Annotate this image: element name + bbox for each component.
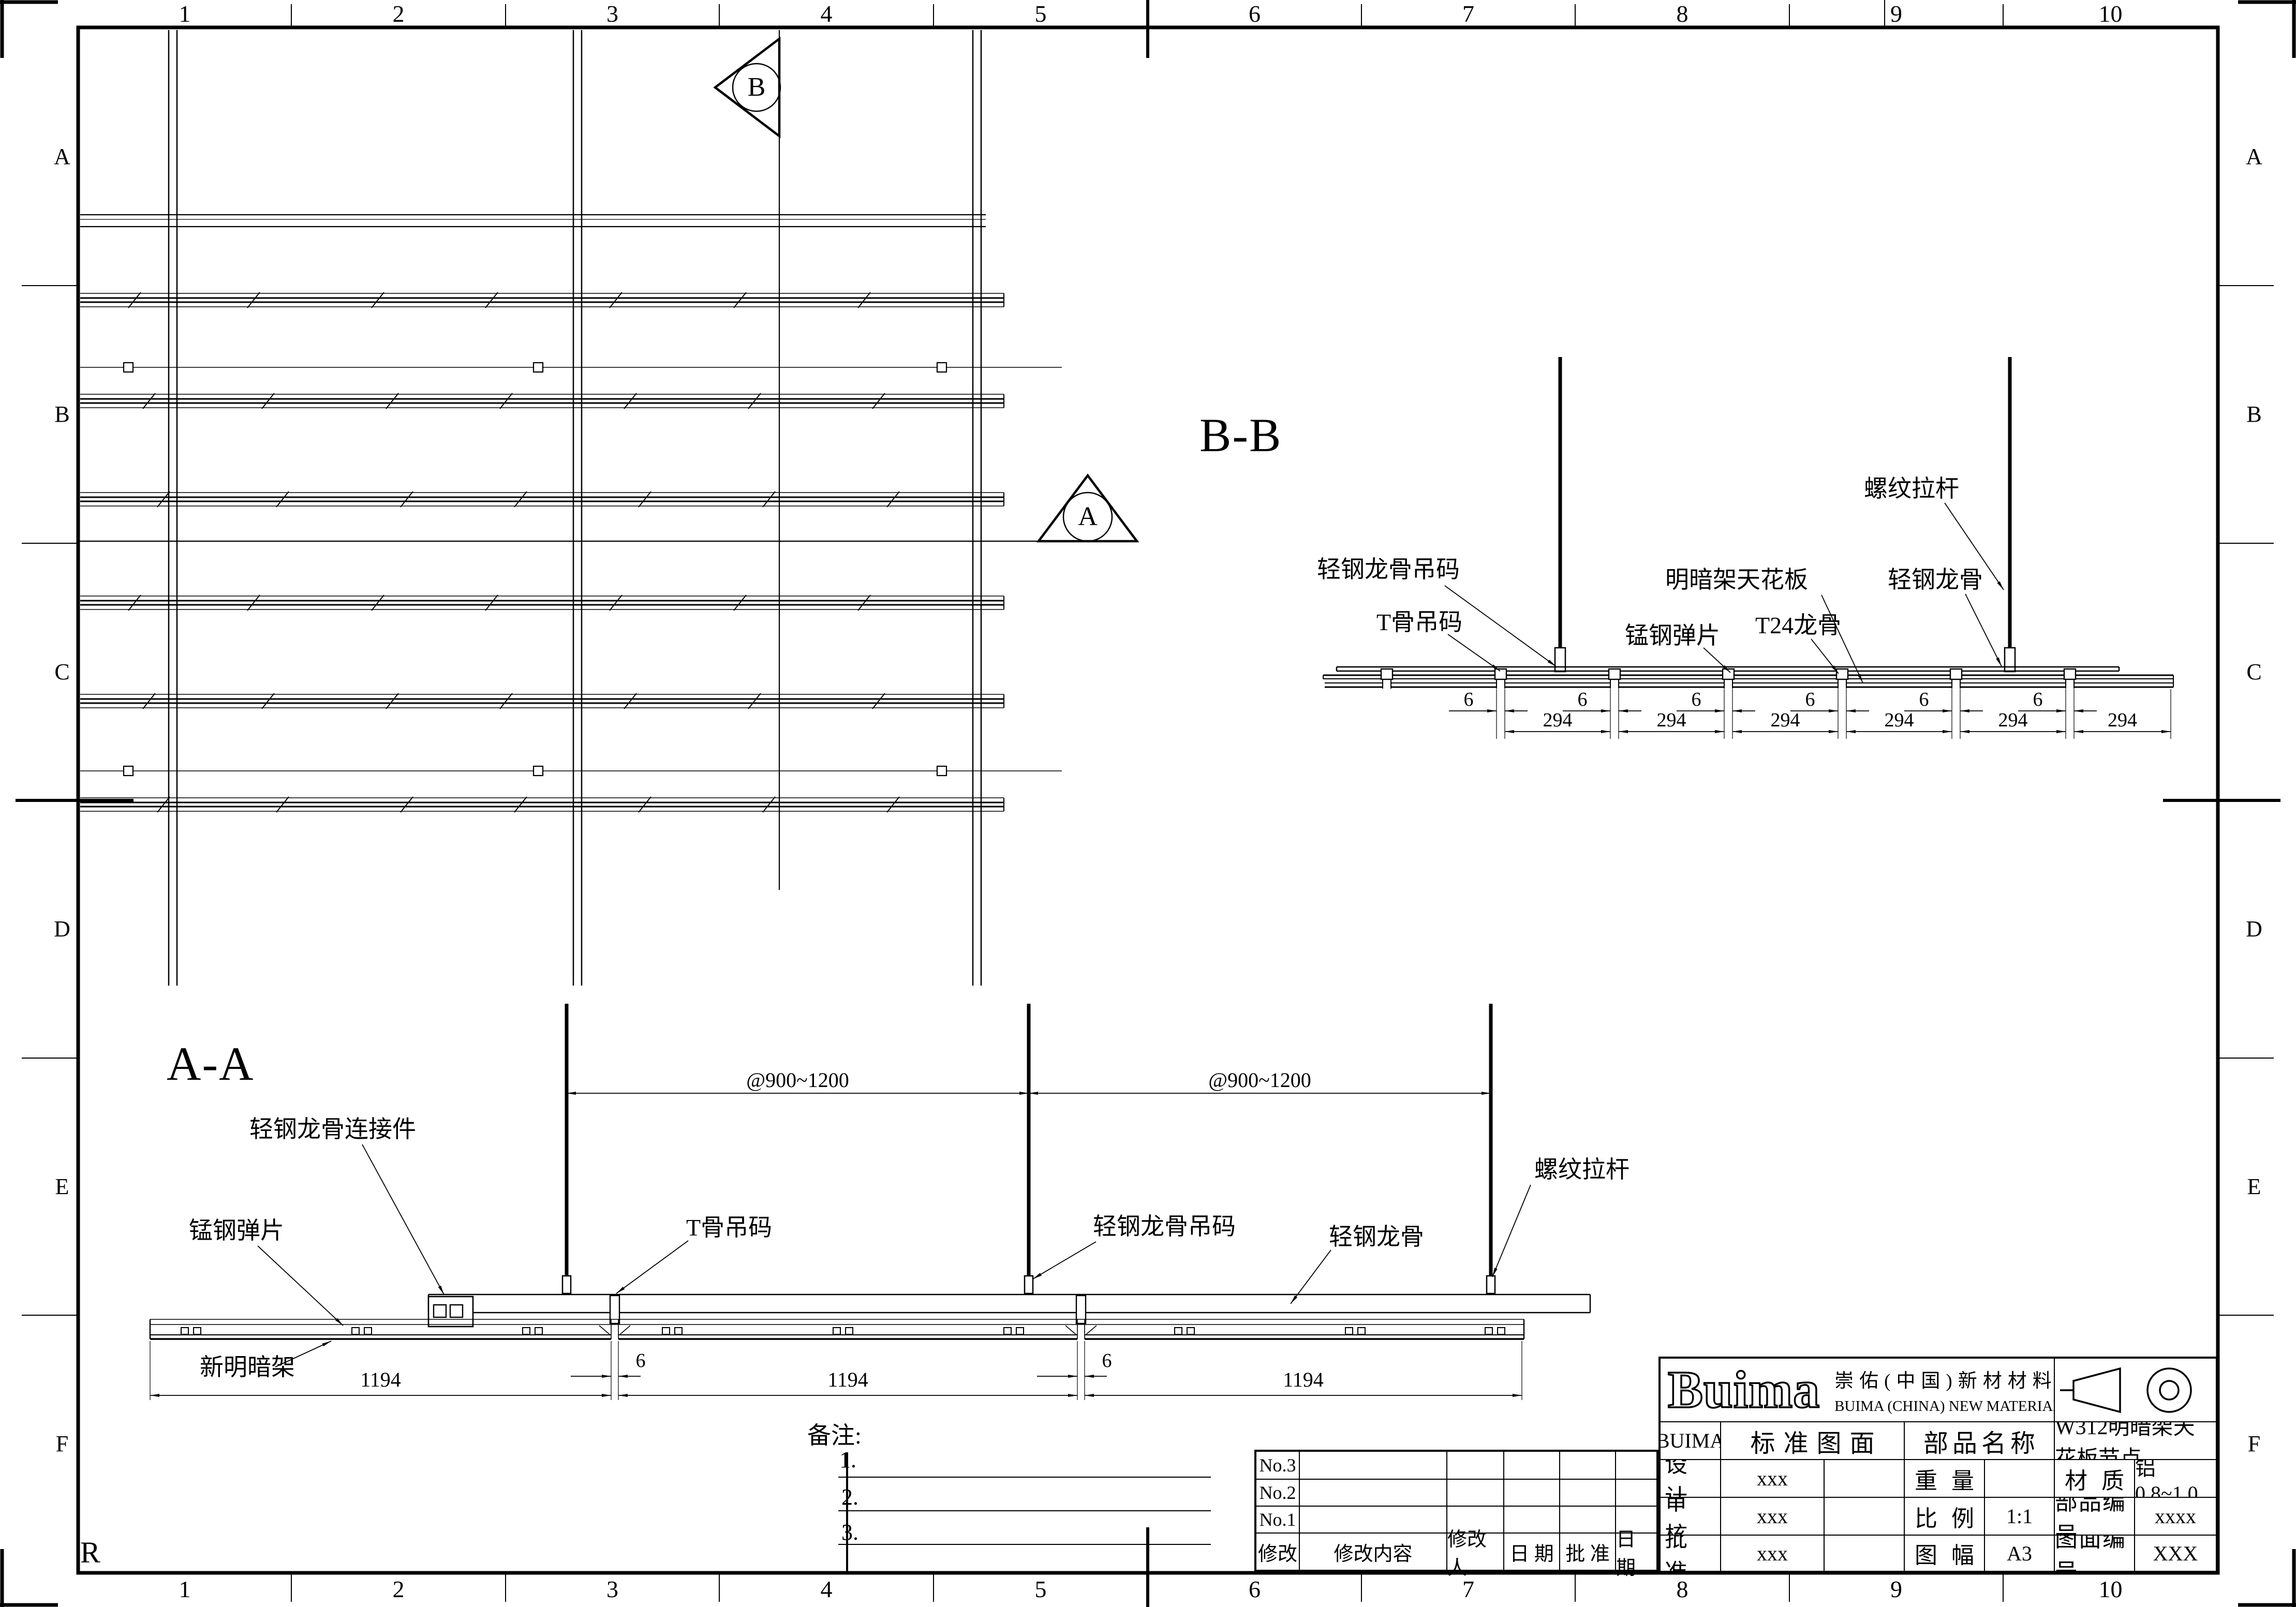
revision-cell xyxy=(1300,1480,1447,1507)
section-title-bb: B-B xyxy=(1199,411,1282,459)
standard-drawing-cell: 标准图面 xyxy=(1720,1421,1904,1459)
part-name-cell: W312明暗架天花板节点 xyxy=(2054,1421,2216,1459)
part-number-value: xxxx xyxy=(2134,1497,2216,1535)
bb-dim-span-label: 294 xyxy=(2108,710,2137,730)
part-number-label: 部品编号 xyxy=(2054,1497,2134,1535)
approver-value: xxx xyxy=(1720,1535,1824,1571)
aa-part-label: 新明暗架 xyxy=(200,1356,295,1379)
revision-cell xyxy=(1504,1480,1560,1507)
aa-dim-panel-label: 1194 xyxy=(360,1370,401,1390)
bb-part-label: T骨吊码 xyxy=(1376,611,1462,634)
col-ref-bottom: 10 xyxy=(2099,1578,2123,1601)
row-ref-right: C xyxy=(2246,661,2261,683)
revision-cell xyxy=(1447,1452,1504,1480)
revision-cell xyxy=(1560,1480,1616,1507)
col-ref-top: 8 xyxy=(1677,2,1688,26)
company-names: 崇佑(中国)新材材料有限公司 BUIMA (CHINA) NEW MATERIA… xyxy=(1834,1365,2054,1415)
bb-part-label: 锰钢弹片 xyxy=(1625,624,1720,648)
col-ref-top: 3 xyxy=(606,2,618,26)
bb-dim-gap-label: 6 xyxy=(1578,690,1588,709)
designer-label: 设 计 xyxy=(1661,1459,1720,1497)
revision-cell xyxy=(1300,1507,1447,1534)
bb-dim-span-label: 294 xyxy=(1657,710,1686,730)
revision-header: 日 期 xyxy=(1616,1534,1656,1570)
col-ref-top: 4 xyxy=(821,2,833,26)
col-ref-top: 7 xyxy=(1462,2,1474,26)
col-ref-bottom: 2 xyxy=(393,1578,405,1601)
section-title-aa: A-A xyxy=(167,1040,255,1088)
col-ref-top: 9 xyxy=(1890,2,1902,26)
bb-dim-span-label: 294 xyxy=(1998,710,2028,730)
part-name-label-cell: 部品名称 xyxy=(1904,1421,2054,1459)
company-name-en: BUIMA (CHINA) NEW MATERIALS CO.,LTD. xyxy=(1834,1398,2054,1415)
aa-part-label: 螺纹拉杆 xyxy=(1534,1158,1630,1182)
revision-cell xyxy=(1560,1507,1616,1534)
row-ref-right: F xyxy=(2248,1433,2260,1455)
bb-dim-span-label: 294 xyxy=(1771,710,1800,730)
section-marker-b-letter: B xyxy=(748,74,766,101)
revision-header: 日 期 xyxy=(1504,1534,1560,1570)
empty-cell xyxy=(1824,1459,1904,1497)
section-marker-a-letter: A xyxy=(1078,503,1098,530)
row-ref-right: B xyxy=(2246,403,2261,426)
revision-cell xyxy=(1616,1480,1656,1507)
notes-item-3: 3. xyxy=(841,1521,858,1544)
checker-label: 审 核 xyxy=(1661,1497,1720,1535)
title-block-logo-cell: Buima 崇佑(中国)新材材料有限公司 BUIMA (CHINA) NEW M… xyxy=(1661,1359,2054,1421)
drawing-number-value: XXX xyxy=(2134,1535,2216,1571)
material-label: 材 质 xyxy=(2054,1459,2134,1497)
aa-part-label: 轻钢龙骨 xyxy=(1329,1225,1424,1249)
revision-cell xyxy=(1447,1480,1504,1507)
row-ref-left: C xyxy=(54,661,69,683)
approver-label: 批 准 xyxy=(1661,1535,1720,1571)
bb-dim-gap-label: 6 xyxy=(2033,690,2043,709)
checker-value: xxx xyxy=(1720,1497,1824,1535)
row-ref-left: D xyxy=(54,918,70,941)
revision-table: No.3 No.2 No.1 修改 修改内容 修改人 日 期 批 准 日 期 xyxy=(1254,1450,1658,1572)
revision-header: 修改内容 xyxy=(1300,1534,1447,1570)
notes-item-1: 1. xyxy=(839,1449,856,1471)
scale-label: 比 例 xyxy=(1904,1497,1984,1535)
bb-part-label: T24龙骨 xyxy=(1755,614,1841,637)
bb-part-label: 轻钢龙骨吊码 xyxy=(1317,558,1460,582)
bb-dim-gap-label: 6 xyxy=(1464,690,1474,709)
row-ref-right: A xyxy=(2246,145,2262,168)
notes-item-2: 2. xyxy=(841,1486,858,1509)
aa-part-label: 锰钢弹片 xyxy=(189,1219,284,1243)
row-ref-left: E xyxy=(55,1176,69,1198)
revision-cell xyxy=(1300,1452,1447,1480)
revision-cell xyxy=(1504,1452,1560,1480)
format-value: A3 xyxy=(1984,1535,2054,1571)
row-ref-left: B xyxy=(54,403,69,426)
company-name-cn: 崇佑(中国)新材材料有限公司 xyxy=(1834,1365,2054,1393)
col-ref-bottom: 9 xyxy=(1890,1578,1902,1601)
col-ref-top: 1 xyxy=(179,2,191,26)
aa-part-label: 轻钢龙骨吊码 xyxy=(1093,1215,1236,1239)
aa-dim-panel-label: 1194 xyxy=(1283,1370,1324,1390)
notes-title: 备注: xyxy=(807,1424,862,1448)
revision-header: 修改人 xyxy=(1447,1534,1504,1570)
col-ref-top: 6 xyxy=(1249,2,1261,26)
col-ref-bottom: 8 xyxy=(1677,1578,1688,1601)
bb-part-label: 螺纹拉杆 xyxy=(1864,477,1959,501)
aa-part-label: 轻钢龙骨连接件 xyxy=(249,1118,416,1141)
aa-dim-spacing-label: @900~1200 xyxy=(746,1070,849,1091)
buima-logo: Buima xyxy=(1668,1364,1820,1417)
revision-row-label: No.2 xyxy=(1256,1480,1300,1507)
col-ref-bottom: 4 xyxy=(821,1578,833,1601)
col-ref-top: 5 xyxy=(1035,2,1047,26)
drawing-number-label: 图面编号 xyxy=(2054,1535,2134,1571)
aa-dim-gap-label: 6 xyxy=(1102,1351,1112,1371)
revision-cell xyxy=(1560,1452,1616,1480)
row-ref-left: F xyxy=(56,1433,68,1455)
revision-cell xyxy=(1504,1507,1560,1534)
col-ref-bottom: 5 xyxy=(1035,1578,1047,1601)
aa-part-label: T骨吊码 xyxy=(686,1216,772,1240)
revision-header: 修改 xyxy=(1256,1534,1300,1570)
bb-dim-gap-label: 6 xyxy=(1692,690,1701,709)
aa-dim-panel-label: 1194 xyxy=(827,1370,868,1390)
col-ref-bottom: 3 xyxy=(606,1578,618,1601)
bb-dim-gap-label: 6 xyxy=(1805,690,1815,709)
weight-value xyxy=(1984,1459,2054,1497)
bb-part-label: 明暗架天花板 xyxy=(1665,568,1808,592)
revision-row-label: No.3 xyxy=(1256,1452,1300,1480)
title-block: Buima 崇佑(中国)新材材料有限公司 BUIMA (CHINA) NEW M… xyxy=(1658,1357,2218,1573)
row-ref-right: D xyxy=(2246,918,2262,941)
material-value: 铝0.8~1.0 xyxy=(2134,1459,2216,1497)
scale-value: 1:1 xyxy=(1984,1497,2054,1535)
brand-cell: BUIMA xyxy=(1661,1421,1720,1459)
revision-cell xyxy=(1616,1452,1656,1480)
weight-label: 重 量 xyxy=(1904,1459,1984,1497)
bb-part-label: 轻钢龙骨 xyxy=(1888,568,1983,592)
col-ref-bottom: 7 xyxy=(1462,1578,1474,1601)
revision-header: 批 准 xyxy=(1560,1534,1616,1570)
revision-row-label: No.1 xyxy=(1256,1507,1300,1534)
empty-cell xyxy=(1824,1535,1904,1571)
empty-cell xyxy=(1824,1497,1904,1535)
bb-dim-gap-label: 6 xyxy=(1919,690,1929,709)
col-ref-top: 2 xyxy=(393,2,405,26)
bb-dim-span-label: 294 xyxy=(1885,710,1914,730)
col-ref-bottom: 6 xyxy=(1249,1578,1261,1601)
first-angle-projection-icon xyxy=(2058,1359,2213,1421)
row-ref-right: E xyxy=(2247,1176,2261,1198)
col-ref-top: 10 xyxy=(2099,2,2123,26)
col-ref-bottom: 1 xyxy=(179,1578,191,1601)
row-ref-left: A xyxy=(54,145,70,168)
format-label: 图 幅 xyxy=(1904,1535,1984,1571)
drawing-sheet: B-B A-A B A 备注: 1. 2. 3. R 1122334455667… xyxy=(0,0,2296,1607)
projection-symbol-cell xyxy=(2054,1359,2216,1421)
designer-value: xxx xyxy=(1720,1459,1824,1497)
corner-mark: R xyxy=(80,1538,100,1568)
bb-dim-span-label: 294 xyxy=(1543,710,1573,730)
aa-dim-spacing-label: @900~1200 xyxy=(1208,1070,1311,1091)
aa-dim-gap-label: 6 xyxy=(636,1351,646,1371)
